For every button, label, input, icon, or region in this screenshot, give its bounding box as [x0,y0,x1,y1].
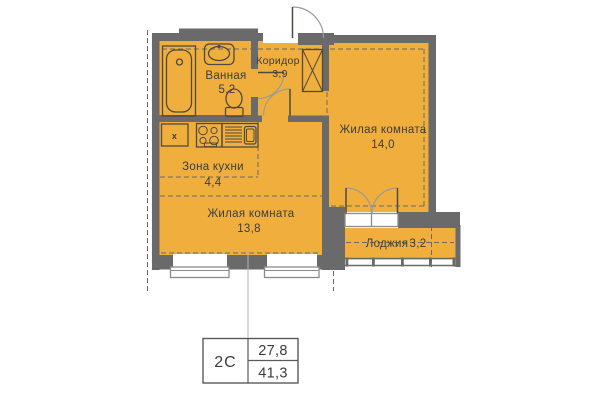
living-left-area: 13,8 [237,223,261,235]
floor-plan-page: x Ванная 5,2 Коридор 3,9 Жилая комната 1… [0,0,600,400]
loggia-label: Лоджия [366,238,409,250]
kitchen-zone-area: 4,4 [205,177,222,189]
living-left-label: Жилая комната [208,208,295,220]
bathroom-area: 5,2 [219,84,236,96]
loggia-glazing [345,258,456,267]
corridor-area: 3,9 [272,68,288,80]
area-summary-table: 2С 27,8 41,3 [203,339,298,384]
floor-plan-canvas: x Ванная 5,2 Коридор 3,9 Жилая комната 1… [0,0,600,400]
bathroom-label: Ванная [205,70,246,82]
total-area: 41,3 [258,366,287,382]
kitchen-zone-label: Зона кухни [182,161,244,173]
loggia-area: 3,2 [410,238,427,250]
corridor-label: Коридор [256,55,300,67]
layout-code: 2С [214,354,236,371]
window-right [265,254,320,278]
living-right-area: 14,0 [371,139,395,151]
window-left [171,254,230,278]
living-right-label: Жилая комната [340,124,427,136]
washing-machine-mark: x [172,131,177,141]
living-area-total: 27,8 [258,343,287,359]
